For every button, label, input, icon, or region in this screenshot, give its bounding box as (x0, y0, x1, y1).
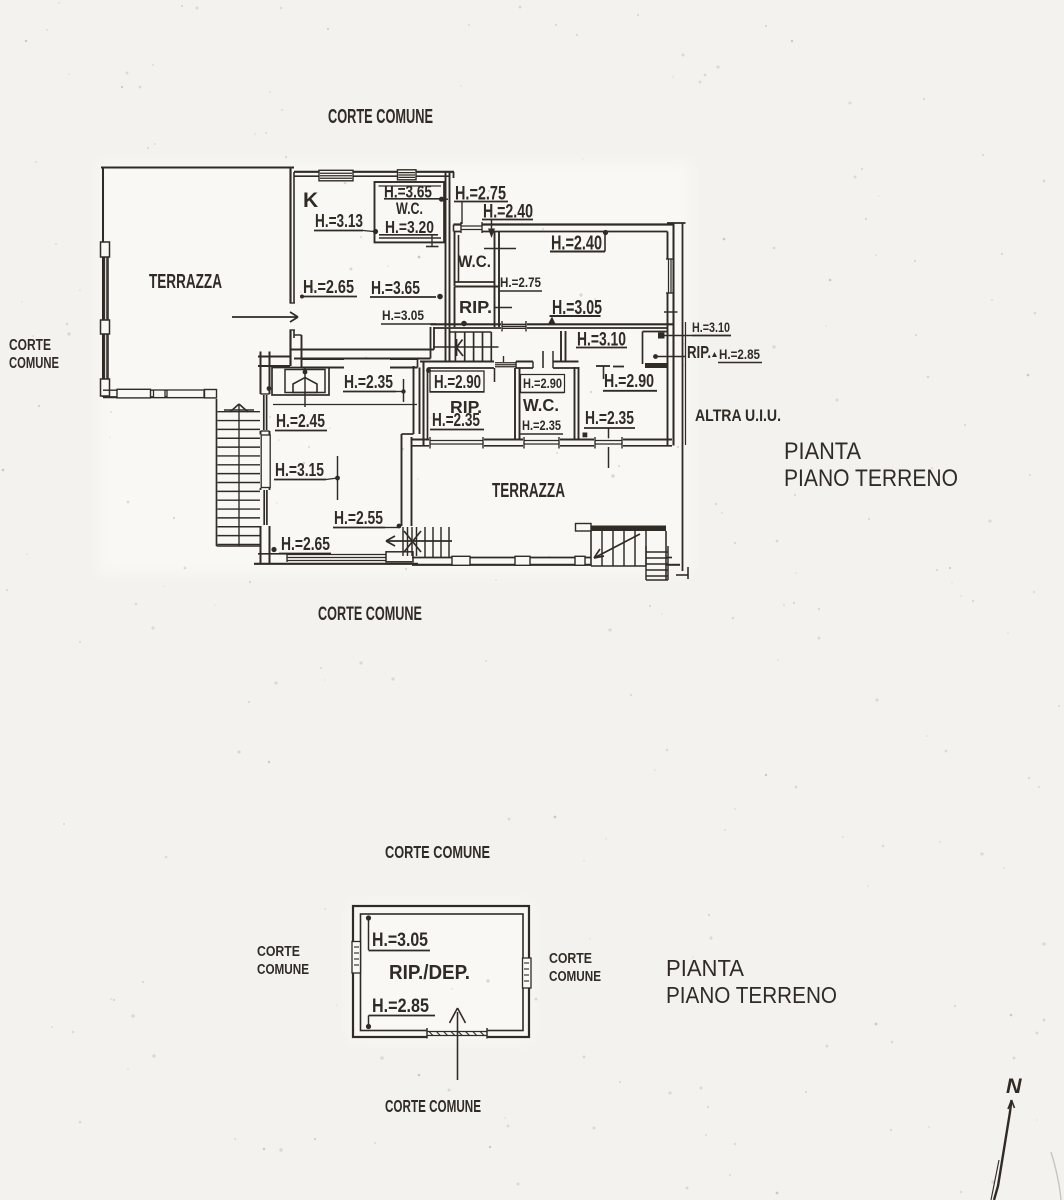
svg-text:K: K (303, 189, 318, 212)
svg-text:H.=2.55: H.=2.55 (334, 507, 383, 528)
svg-text:N: N (1006, 1074, 1022, 1098)
svg-text:H.=2.65: H.=2.65 (281, 533, 330, 554)
svg-text:CORTE COMUNE: CORTE COMUNE (328, 105, 433, 128)
svg-text:H.=2.35: H.=2.35 (585, 407, 634, 428)
svg-text:H.=2.45: H.=2.45 (276, 410, 325, 431)
svg-text:H.=2.35: H.=2.35 (522, 418, 561, 433)
svg-text:H.=2.90: H.=2.90 (434, 372, 481, 392)
svg-text:H.=3.65: H.=3.65 (371, 277, 420, 298)
svg-text:H.=2.90: H.=2.90 (523, 376, 562, 391)
svg-text:H.=2.65: H.=2.65 (303, 276, 354, 297)
svg-text:RIP.: RIP. (687, 342, 711, 362)
svg-text:W.C.: W.C. (396, 200, 423, 218)
svg-text:H.=2.35: H.=2.35 (432, 410, 480, 430)
svg-text:H.=3.13: H.=3.13 (315, 210, 363, 231)
svg-text:COMUNE: COMUNE (257, 962, 309, 978)
svg-text:H.=3.10: H.=3.10 (692, 320, 730, 335)
svg-text:H.=2.75: H.=2.75 (500, 275, 541, 290)
svg-text:H.=2.90: H.=2.90 (604, 370, 654, 391)
svg-text:W.C.: W.C. (523, 395, 559, 415)
svg-text:H.=2.85: H.=2.85 (372, 996, 429, 1017)
svg-text:COMUNE: COMUNE (549, 969, 601, 985)
svg-text:PIANO TERRENO: PIANO TERRENO (784, 465, 958, 492)
svg-text:H.=3.15: H.=3.15 (275, 459, 324, 480)
svg-text:H.=2.35: H.=2.35 (344, 371, 393, 392)
svg-text:H.=3.05: H.=3.05 (382, 307, 424, 323)
svg-text:H.=2.85: H.=2.85 (719, 347, 760, 362)
svg-text:PIANTA: PIANTA (784, 438, 861, 465)
svg-text:ALTRA U.I.U.: ALTRA U.I.U. (695, 406, 781, 425)
svg-text:RIP./DEP.: RIP./DEP. (389, 962, 470, 984)
svg-text:PIANO TERRENO: PIANO TERRENO (666, 982, 837, 1008)
svg-text:TERRAZZA: TERRAZZA (149, 270, 222, 293)
svg-text:H.=3.05: H.=3.05 (372, 930, 428, 951)
svg-text:CORTE: CORTE (9, 337, 51, 354)
svg-text:CORTE COMUNE: CORTE COMUNE (385, 1096, 481, 1116)
svg-text:PIANTA: PIANTA (666, 955, 744, 981)
svg-text:CORTE: CORTE (257, 944, 300, 960)
svg-text:RIP.: RIP. (459, 297, 492, 317)
svg-text:COMUNE: COMUNE (9, 355, 59, 372)
svg-text:CORTE COMUNE: CORTE COMUNE (385, 842, 490, 862)
svg-text:CORTE COMUNE: CORTE COMUNE (318, 604, 422, 625)
svg-text:TERRAZZA: TERRAZZA (492, 479, 565, 502)
svg-text:W.C.: W.C. (458, 252, 491, 271)
svg-text:CORTE: CORTE (549, 951, 592, 967)
